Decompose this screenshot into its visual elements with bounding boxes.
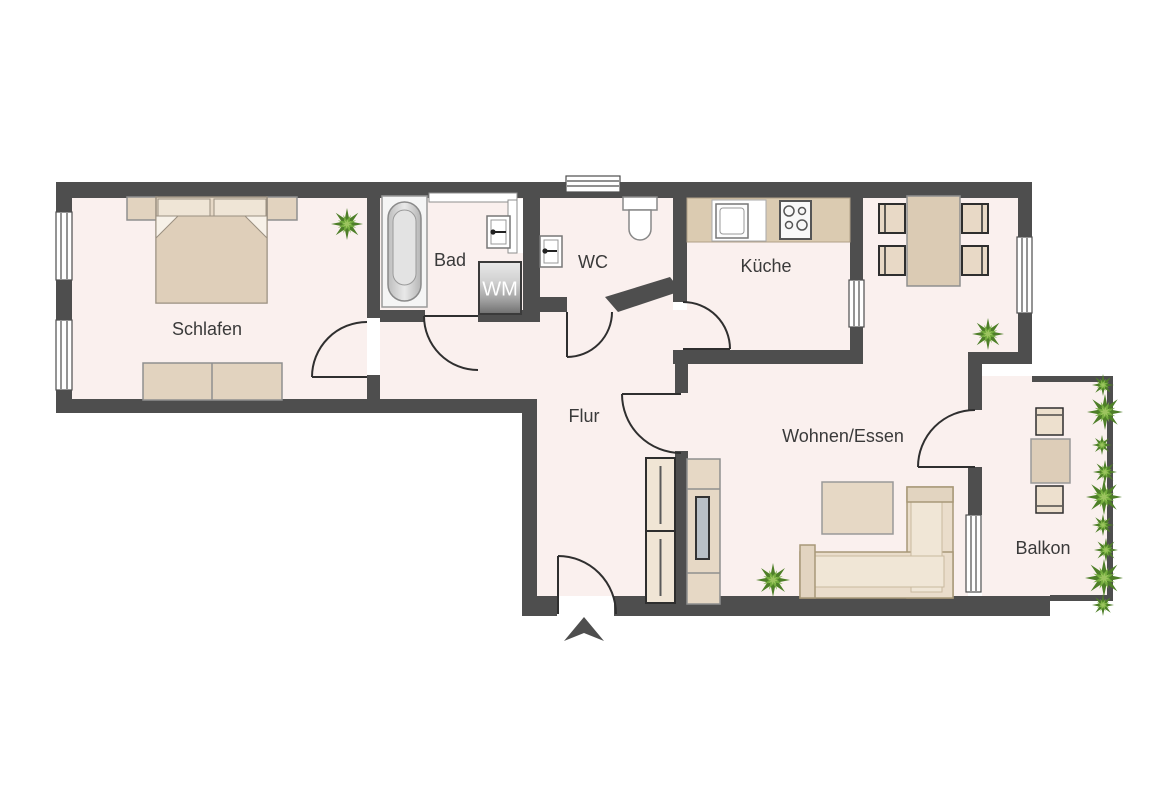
dresser bbox=[143, 363, 282, 400]
wall-flur-wohnen-upper bbox=[675, 364, 688, 393]
floor-plan: WM bbox=[0, 0, 1170, 785]
pillow bbox=[214, 199, 266, 216]
wall-kueche-essplatz-upper bbox=[850, 198, 863, 280]
floor-plan-canvas: WM bbox=[0, 0, 1170, 785]
sofa-armrest bbox=[907, 487, 953, 502]
washing-machine: WM bbox=[479, 262, 521, 314]
window-schlafen-1 bbox=[56, 212, 72, 280]
wall-kueche-wohnen bbox=[673, 350, 863, 364]
room-label-kueche: Küche bbox=[740, 256, 791, 276]
pillow bbox=[158, 199, 210, 216]
washing-machine-label: WM bbox=[482, 278, 518, 300]
wall-schlafen-bottom bbox=[56, 399, 537, 413]
plant-icon bbox=[756, 563, 790, 597]
window-balkon bbox=[966, 515, 981, 592]
bed bbox=[156, 197, 267, 303]
window-schlafen-2 bbox=[56, 320, 72, 390]
sofa-cushion bbox=[814, 556, 944, 587]
wall-wc-bottom bbox=[540, 297, 567, 312]
tv-sideboard bbox=[687, 459, 720, 604]
wall-bottom-left bbox=[522, 596, 557, 616]
room-label-wohnen-essen: Wohnen/Essen bbox=[782, 426, 904, 446]
blanket bbox=[156, 216, 267, 303]
wall-essplatz-right-upper bbox=[1018, 182, 1032, 237]
entrance-arrow-icon bbox=[564, 617, 604, 641]
room-label-bad: Bad bbox=[434, 250, 466, 270]
room-label-flur: Flur bbox=[569, 406, 600, 426]
dining-chair bbox=[879, 204, 905, 233]
wall-exterior-top bbox=[56, 182, 1032, 198]
floor-balkon-doorway bbox=[968, 410, 982, 467]
kitchen-sink bbox=[712, 200, 766, 241]
balcony-chair bbox=[1036, 408, 1063, 435]
stove bbox=[780, 201, 811, 239]
wall-flur-wohnen-lower bbox=[675, 451, 688, 596]
dining-table bbox=[907, 196, 960, 286]
window-essplatz bbox=[1017, 237, 1032, 313]
plant-icon bbox=[972, 318, 1004, 350]
wall-schlafen-door-stub bbox=[367, 375, 380, 401]
wardrobe bbox=[646, 458, 675, 603]
wall-bad-wc bbox=[523, 198, 540, 317]
wall-schlafen-bad bbox=[367, 198, 380, 318]
floor-flur-west bbox=[380, 310, 537, 413]
washbasin-bad bbox=[487, 216, 510, 248]
coffee-table bbox=[822, 482, 893, 534]
wall-bad-bottom-left bbox=[380, 310, 425, 322]
nightstand-right bbox=[267, 197, 297, 220]
room-label-wc: WC bbox=[578, 252, 608, 272]
room-label-balkon: Balkon bbox=[1015, 538, 1070, 558]
pass-through-kueche bbox=[849, 280, 864, 327]
wall-wohnen-east-mid bbox=[968, 467, 982, 515]
wall-step-vertical bbox=[522, 399, 537, 616]
balcony-table bbox=[1031, 439, 1070, 483]
dining-chair bbox=[962, 246, 988, 275]
tv-icon bbox=[696, 497, 709, 559]
bathtub bbox=[382, 196, 427, 307]
wall-wc-kueche bbox=[673, 198, 687, 302]
wall-kueche-essplatz-lower bbox=[850, 327, 863, 352]
wall-wohnen-east-upper bbox=[968, 352, 982, 410]
nightstand-left bbox=[127, 197, 157, 220]
plant-icon bbox=[331, 208, 363, 240]
dining-chair bbox=[962, 204, 988, 233]
kitchen-counter bbox=[687, 198, 850, 242]
wall-bottom-main bbox=[614, 596, 1050, 616]
washbasin-wc bbox=[540, 236, 562, 267]
partition-top bbox=[429, 193, 517, 202]
furniture-kueche bbox=[687, 198, 850, 242]
window-wc bbox=[566, 176, 620, 192]
balcony-chair bbox=[1036, 486, 1063, 513]
room-label-schlafen: Schlafen bbox=[172, 319, 242, 339]
sofa-armrest bbox=[800, 545, 815, 598]
dining-chair bbox=[879, 246, 905, 275]
